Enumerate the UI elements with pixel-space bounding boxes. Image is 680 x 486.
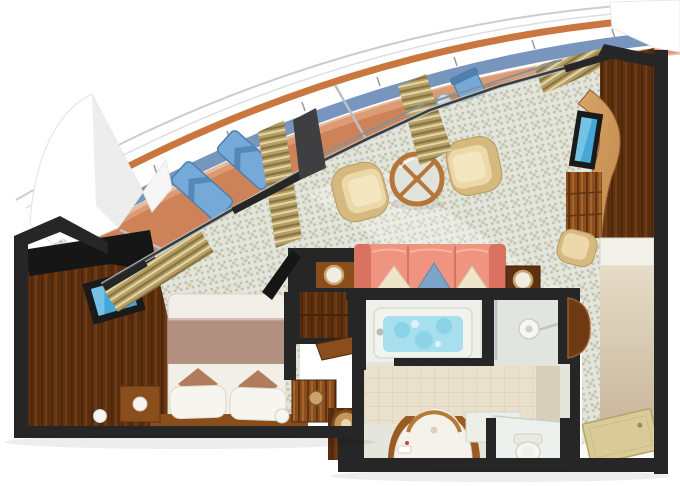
soap (405, 441, 409, 445)
wall-entry-west (570, 354, 580, 462)
bath-corridor-shade (536, 366, 560, 424)
wall-toilet-west (486, 418, 496, 470)
wall-tub-south (394, 358, 490, 366)
shower-room (494, 296, 566, 364)
vanity-tray (398, 446, 411, 453)
bedside-lamp (133, 397, 147, 411)
wall-tub-west (352, 292, 366, 370)
wall-tub-east (482, 292, 494, 366)
drop-shadow (5, 435, 375, 449)
closet-top (600, 238, 654, 266)
bedside-lamp (94, 410, 107, 423)
decor-urn (309, 391, 323, 405)
sink-basin (431, 427, 438, 434)
wall-left (14, 242, 28, 430)
wall-bath-west (352, 366, 364, 470)
side-table-lamp (514, 271, 532, 289)
wall-sofa-back (346, 288, 580, 300)
bathroom (352, 292, 580, 470)
stateroom-floor-plan-svg: Aerial 3D cutaway floor plan of a cruise… (0, 0, 680, 486)
bath-corridor-tile-floor (364, 366, 560, 424)
wall-bottom-right (346, 458, 668, 472)
drop-shadow (330, 470, 670, 482)
coffee-table (392, 154, 442, 204)
towel-stack (325, 266, 343, 284)
wall-bedroom-stub (284, 292, 296, 380)
desk-drawers (566, 172, 602, 238)
wall-right (654, 50, 668, 474)
floor-plan-illustration: Aerial 3D cutaway floor plan of a cruise… (0, 0, 680, 486)
bedside-lamp (275, 409, 289, 423)
bed-pillow (169, 385, 226, 419)
tub-faucet (377, 329, 384, 336)
bathtub-room (366, 300, 480, 362)
